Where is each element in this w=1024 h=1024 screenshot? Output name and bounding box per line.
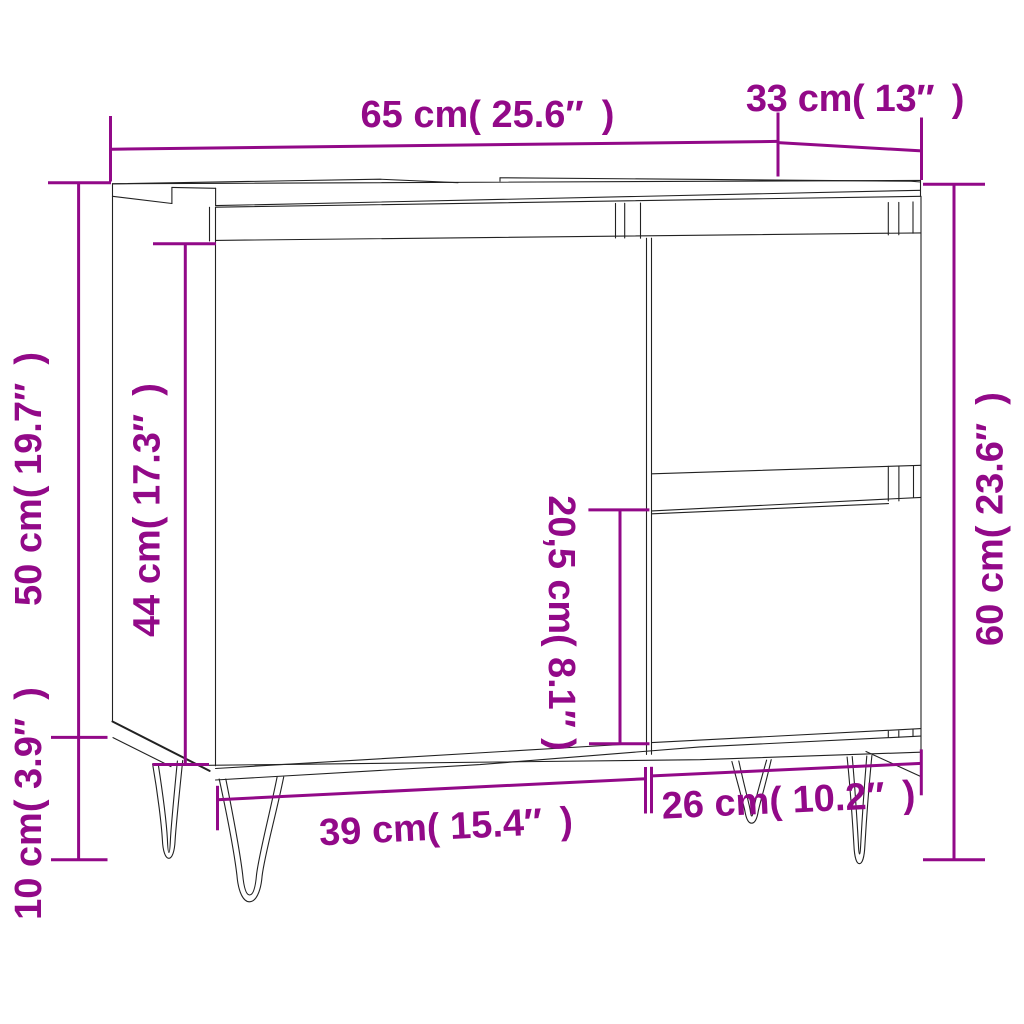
svg-text:33 cm( 13″ ): 33 cm( 13″ ): [746, 78, 964, 120]
svg-text:65 cm( 25.6″ ): 65 cm( 25.6″ ): [361, 94, 615, 136]
svg-text:20,5 cm( 8.1″ ): 20,5 cm( 8.1″ ): [540, 495, 582, 750]
svg-text:10 cm( 3.9″ ): 10 cm( 3.9″ ): [8, 687, 50, 920]
svg-text:44 cm( 17.3″ ): 44 cm( 17.3″ ): [127, 383, 169, 637]
svg-text:60 cm( 23.6″ ): 60 cm( 23.6″ ): [970, 392, 1012, 646]
svg-text:50 cm( 19.7″ ): 50 cm( 19.7″ ): [8, 352, 50, 606]
